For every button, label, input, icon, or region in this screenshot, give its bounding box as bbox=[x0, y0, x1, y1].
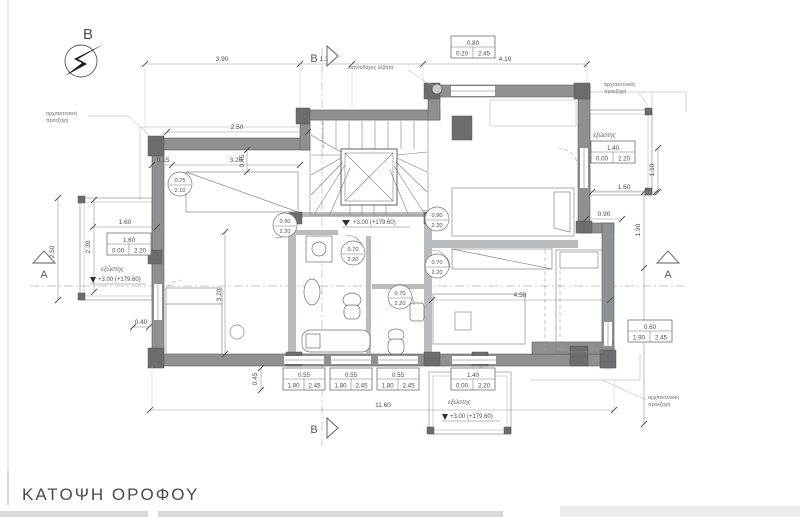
scan-artifacts bbox=[0, 0, 800, 517]
svg-text:1.80: 1.80 bbox=[334, 383, 347, 390]
schedule-box: 1.60 0.00 2.20 bbox=[107, 233, 151, 255]
chimney-note: καπνοδόχος λέβητα bbox=[348, 64, 393, 71]
svg-text:0.70: 0.70 bbox=[432, 260, 443, 266]
svg-text:0.15: 0.15 bbox=[157, 157, 170, 164]
svg-text:0.90: 0.90 bbox=[432, 213, 443, 219]
note-overhang-top-right: αρχιτεκτονική προεξοχή bbox=[604, 81, 648, 106]
door-tag: 0.70 2.20 bbox=[425, 254, 449, 278]
door-tag: 0.90 2.20 bbox=[425, 207, 449, 231]
svg-text:B: B bbox=[310, 53, 317, 65]
svg-text:A: A bbox=[664, 269, 672, 281]
door-tag: 0.70 2.20 bbox=[388, 285, 412, 309]
svg-text:+3.00 (+179.60): +3.00 (+179.60) bbox=[450, 414, 493, 420]
svg-text:0.00: 0.00 bbox=[456, 383, 469, 390]
svg-text:2.20: 2.20 bbox=[395, 301, 406, 307]
schedule-box: 0.55 1.80 2.45 bbox=[330, 368, 372, 390]
svg-text:2.20: 2.20 bbox=[280, 229, 291, 235]
schedule-box: 0.55 1.80 2.45 bbox=[377, 368, 419, 390]
svg-text:2.20: 2.20 bbox=[618, 156, 631, 163]
svg-text:1.60: 1.60 bbox=[119, 219, 132, 226]
floor-plan-drawing: B bbox=[0, 0, 800, 517]
svg-text:0.90: 0.90 bbox=[280, 219, 291, 225]
svg-text:εξώστης: εξώστης bbox=[448, 399, 471, 406]
svg-text:+3.00 (+179.60): +3.00 (+179.60) bbox=[353, 220, 396, 226]
schedule-box: 0.60 1.90 2.45 bbox=[628, 320, 672, 342]
svg-text:2.45: 2.45 bbox=[655, 335, 668, 342]
section-marker-b-bottom: B bbox=[310, 418, 338, 438]
level-marker-balcony-left: εξώστης +3.00 (+179.60) bbox=[90, 266, 146, 284]
svg-text:1.90: 1.90 bbox=[633, 335, 646, 342]
level-marker-floor: +3.00 (+179.60) bbox=[342, 220, 410, 227]
svg-text:0.90: 0.90 bbox=[598, 211, 611, 218]
drawing-title: ΚΑΤΟΨΗ ΟΡΟΦΟΥ bbox=[22, 485, 199, 504]
svg-text:εξώστης: εξώστης bbox=[101, 266, 124, 273]
svg-text:προεξοχή: προεξοχή bbox=[604, 88, 626, 95]
svg-text:0.70: 0.70 bbox=[395, 291, 406, 297]
svg-text:1.80: 1.80 bbox=[287, 383, 300, 390]
door-tag: 0.75 2.10 bbox=[168, 172, 192, 196]
svg-text:1.10: 1.10 bbox=[649, 163, 656, 176]
north-label: B bbox=[83, 26, 93, 43]
svg-text:προεξοχή: προεξοχή bbox=[46, 117, 68, 124]
svg-text:αρχιτεκτονική: αρχιτεκτονική bbox=[604, 81, 635, 88]
svg-text:0.75: 0.75 bbox=[175, 178, 186, 184]
svg-text:2.45: 2.45 bbox=[355, 383, 368, 390]
svg-text:2.20: 2.20 bbox=[478, 383, 491, 390]
svg-text:1.80: 1.80 bbox=[381, 383, 394, 390]
svg-text:4.10: 4.10 bbox=[499, 56, 512, 63]
svg-text:2.45: 2.45 bbox=[308, 383, 321, 390]
svg-text:2.20: 2.20 bbox=[432, 270, 443, 276]
svg-text:0.45: 0.45 bbox=[239, 154, 246, 167]
svg-text:αρχιτεκτονική: αρχιτεκτονική bbox=[46, 110, 77, 117]
svg-text:1.60: 1.60 bbox=[618, 184, 631, 191]
note-overhang-top-left: αρχιτεκτονική προεξοχή bbox=[46, 110, 150, 136]
svg-text:0.60: 0.60 bbox=[644, 324, 657, 331]
note-overhang-bottom-right: αρχιτεκτονική προεξοχή bbox=[602, 380, 679, 408]
svg-text:11.60: 11.60 bbox=[375, 402, 391, 409]
svg-text:0.20: 0.20 bbox=[456, 51, 469, 58]
schedule-box: 0.80 0.20 2.45 bbox=[451, 36, 495, 58]
north-arrow: B bbox=[65, 26, 104, 77]
svg-text:0.55: 0.55 bbox=[298, 372, 311, 379]
walls bbox=[152, 85, 614, 368]
svg-text:0.45: 0.45 bbox=[252, 372, 259, 385]
svg-text:2.20: 2.20 bbox=[348, 257, 359, 263]
svg-text:0.55: 0.55 bbox=[345, 372, 358, 379]
svg-text:προεξοχή: προεξοχή bbox=[648, 401, 670, 408]
svg-text:0.00: 0.00 bbox=[596, 156, 609, 163]
svg-text:4.50: 4.50 bbox=[514, 292, 527, 299]
svg-text:+3.00 (+179.60): +3.00 (+179.60) bbox=[98, 277, 141, 283]
svg-text:0.00: 0.00 bbox=[112, 248, 125, 255]
section-marker-a-right: A bbox=[657, 251, 679, 281]
door-tag: 0.70 2.20 bbox=[341, 241, 365, 265]
svg-text:1.40: 1.40 bbox=[467, 372, 480, 379]
svg-text:2.45: 2.45 bbox=[402, 383, 415, 390]
svg-text:2.10: 2.10 bbox=[175, 188, 186, 194]
svg-text:2.50: 2.50 bbox=[49, 245, 56, 258]
svg-text:2.20: 2.20 bbox=[432, 223, 443, 229]
svg-text:0.80: 0.80 bbox=[467, 40, 480, 47]
svg-text:2.50: 2.50 bbox=[231, 124, 244, 131]
door-tag: 0.90 2.20 bbox=[273, 213, 297, 237]
scanned-floor-plan-page: B bbox=[0, 0, 800, 517]
svg-text:1.40: 1.40 bbox=[607, 145, 620, 152]
svg-text:3.20: 3.20 bbox=[216, 288, 223, 301]
svg-text:0.55: 0.55 bbox=[392, 372, 405, 379]
svg-text:2.20: 2.20 bbox=[134, 248, 147, 255]
svg-text:0.40: 0.40 bbox=[135, 319, 148, 326]
svg-text:1.90: 1.90 bbox=[635, 223, 642, 236]
svg-text:2.45: 2.45 bbox=[478, 51, 491, 58]
svg-text:αρχιτεκτονική: αρχιτεκτονική bbox=[648, 394, 679, 401]
svg-text:0.70: 0.70 bbox=[348, 247, 359, 253]
staircase bbox=[310, 120, 428, 215]
svg-text:1.60: 1.60 bbox=[123, 237, 136, 244]
svg-text:B: B bbox=[310, 424, 317, 436]
schedule-box: εξώστης 1.40 0.00 2.20 bbox=[591, 132, 635, 163]
svg-text:3.90: 3.90 bbox=[216, 56, 229, 63]
schedule-box: 1.40 0.00 2.20 bbox=[451, 368, 495, 390]
svg-text:A: A bbox=[40, 269, 48, 281]
balcony-label: εξώστης bbox=[593, 132, 616, 139]
svg-text:2.30: 2.30 bbox=[85, 240, 92, 253]
schedule-box: 0.55 1.80 2.45 bbox=[283, 368, 325, 390]
